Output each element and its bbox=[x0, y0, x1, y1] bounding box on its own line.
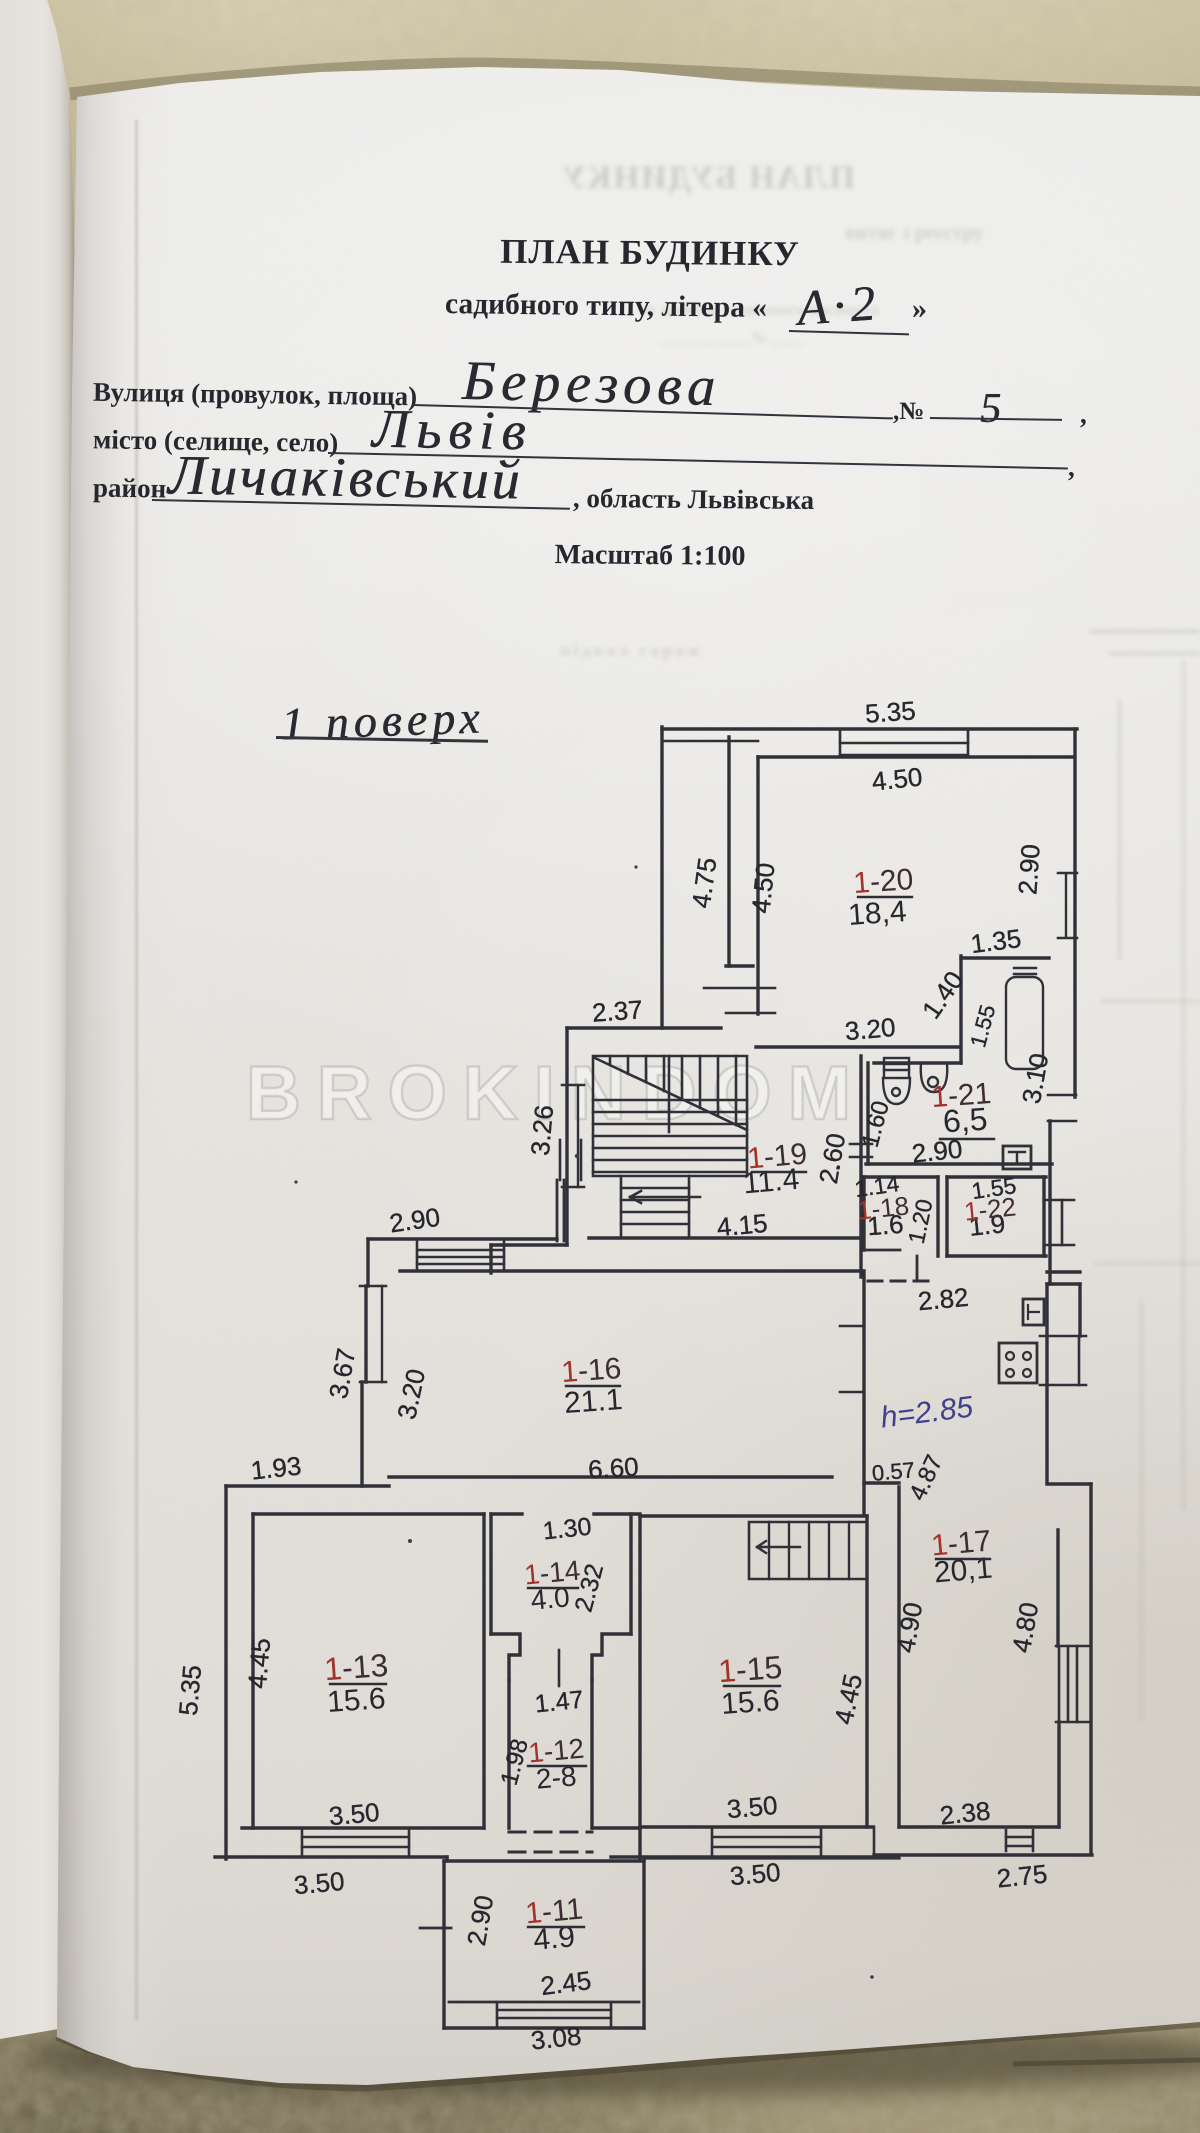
svg-text:1-13: 1-13 bbox=[323, 1647, 389, 1687]
svg-text:11.4: 11.4 bbox=[742, 1163, 801, 1201]
svg-text:4.50: 4.50 bbox=[870, 761, 923, 796]
svg-text:1.35: 1.35 bbox=[969, 923, 1023, 959]
svg-text:2.37: 2.37 bbox=[591, 994, 644, 1027]
svg-text:1-22: 1-22 bbox=[963, 1191, 1018, 1226]
svg-text:2.90: 2.90 bbox=[388, 1202, 442, 1239]
svg-text:3.50: 3.50 bbox=[726, 1790, 779, 1824]
svg-text:2.45: 2.45 bbox=[539, 1965, 593, 2001]
svg-text:3.50: 3.50 bbox=[293, 1866, 346, 1900]
svg-text:6,5: 6,5 bbox=[942, 1101, 989, 1140]
svg-text:4.0: 4.0 bbox=[529, 1581, 570, 1615]
svg-text:4.80: 4.80 bbox=[1006, 1600, 1044, 1655]
svg-text:3.26: 3.26 bbox=[525, 1104, 559, 1157]
svg-text:15.6: 15.6 bbox=[326, 1682, 387, 1719]
svg-text:3.20: 3.20 bbox=[844, 1012, 897, 1046]
svg-text:1.47: 1.47 bbox=[533, 1686, 584, 1719]
svg-text:2.38: 2.38 bbox=[938, 1795, 991, 1830]
svg-text:2.90: 2.90 bbox=[461, 1893, 499, 1948]
svg-text:3.50: 3.50 bbox=[729, 1857, 782, 1891]
svg-text:15.6: 15.6 bbox=[720, 1684, 781, 1721]
svg-text:4.9: 4.9 bbox=[532, 1920, 576, 1957]
svg-text:6.60: 6.60 bbox=[587, 1451, 640, 1484]
svg-text:4.50: 4.50 bbox=[745, 861, 780, 914]
svg-text:5.35: 5.35 bbox=[173, 1664, 207, 1717]
svg-text:3.50: 3.50 bbox=[328, 1797, 381, 1831]
svg-text:4.45: 4.45 bbox=[828, 1671, 868, 1727]
svg-text:2.60: 2.60 bbox=[813, 1131, 851, 1186]
svg-text:3.08: 3.08 bbox=[529, 2020, 582, 2055]
svg-text:h=2.85: h=2.85 bbox=[879, 1391, 975, 1435]
svg-text:2.75: 2.75 bbox=[995, 1858, 1048, 1893]
svg-text:4.90: 4.90 bbox=[890, 1600, 928, 1655]
svg-text:3.20: 3.20 bbox=[391, 1366, 431, 1422]
svg-text:1.55: 1.55 bbox=[965, 1002, 1000, 1050]
svg-text:4.15: 4.15 bbox=[716, 1208, 769, 1242]
svg-text:2.82: 2.82 bbox=[917, 1282, 970, 1316]
svg-text:18,4: 18,4 bbox=[847, 895, 908, 932]
svg-text:4.75: 4.75 bbox=[686, 856, 723, 910]
svg-text:3.67: 3.67 bbox=[323, 1346, 361, 1401]
svg-text:4.45: 4.45 bbox=[242, 1637, 276, 1690]
svg-text:20,1: 20,1 bbox=[933, 1552, 994, 1590]
svg-text:3.10: 3.10 bbox=[1016, 1051, 1054, 1106]
svg-text:1.93: 1.93 bbox=[249, 1450, 302, 1485]
svg-text:1-18: 1-18 bbox=[856, 1190, 911, 1225]
svg-text:2.90: 2.90 bbox=[1012, 843, 1045, 896]
svg-text:5.35: 5.35 bbox=[864, 695, 917, 728]
svg-text:1-15: 1-15 bbox=[717, 1649, 783, 1689]
svg-text:21.1: 21.1 bbox=[563, 1383, 624, 1420]
svg-text:1.30: 1.30 bbox=[541, 1513, 592, 1546]
